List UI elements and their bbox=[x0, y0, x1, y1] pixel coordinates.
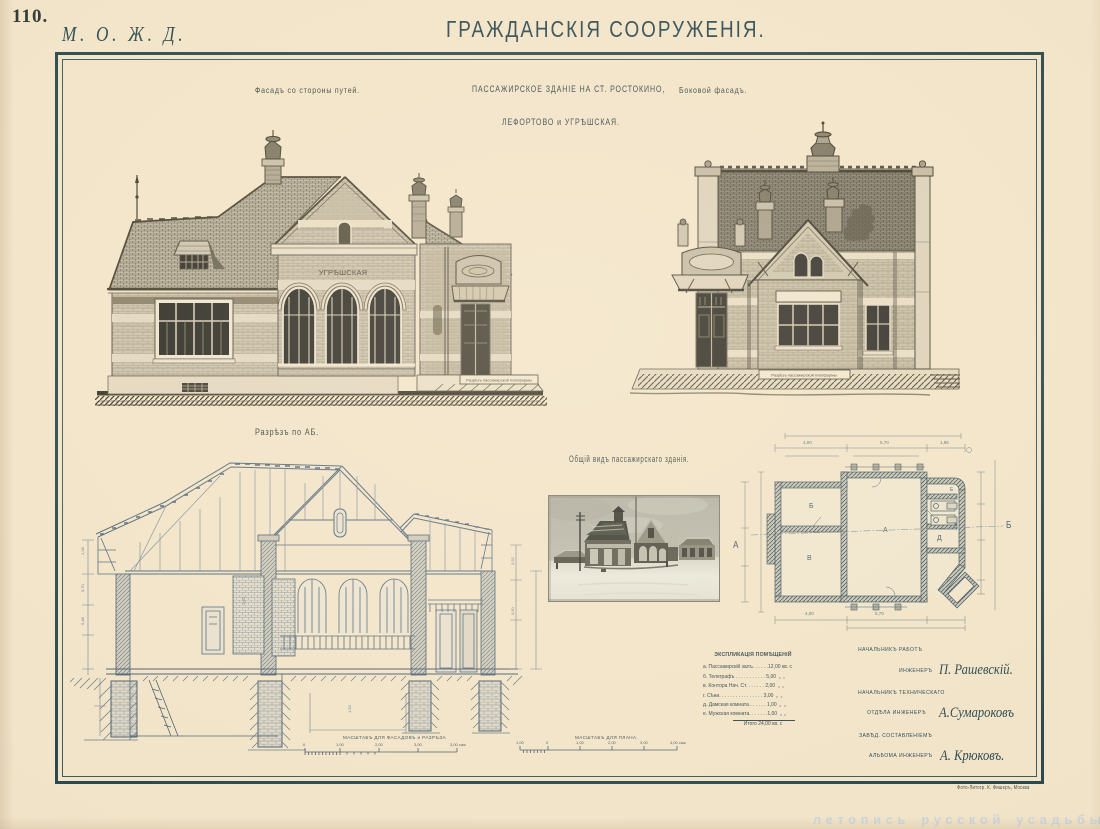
svg-text:1,95: 1,95 bbox=[940, 440, 949, 445]
svg-text:5,70: 5,70 bbox=[875, 611, 884, 616]
svg-text:0: 0 bbox=[546, 740, 549, 745]
svg-text:0: 0 bbox=[303, 742, 306, 747]
svg-text:3,00: 3,00 bbox=[640, 740, 649, 745]
svg-text:2,00: 2,00 bbox=[375, 742, 384, 747]
svg-text:3,00 саж: 3,00 саж bbox=[450, 742, 466, 747]
svg-text:УГРѢШСКАЯ: УГРѢШСКАЯ bbox=[319, 268, 368, 277]
svg-text:0,60: 0,60 bbox=[510, 606, 515, 615]
svg-text:2,00: 2,00 bbox=[608, 740, 617, 745]
svg-text:1,00: 1,00 bbox=[336, 742, 345, 747]
svg-text:1,00: 1,00 bbox=[516, 740, 525, 745]
svg-text:0,48: 0,48 bbox=[80, 616, 85, 625]
svg-text:1,50: 1,50 bbox=[347, 704, 352, 713]
svg-text:4,00: 4,00 bbox=[803, 440, 812, 445]
svg-text:А: А bbox=[883, 527, 888, 534]
svg-text:В: В bbox=[807, 555, 812, 562]
svg-text:Разрѣзъ пассажирской платформы: Разрѣзъ пассажирской платформы bbox=[771, 373, 837, 378]
svg-text:0,70: 0,70 bbox=[80, 583, 85, 592]
svg-text:4,00: 4,00 bbox=[805, 611, 814, 616]
svg-text:1,08: 1,08 bbox=[80, 546, 85, 555]
svg-text:0,92: 0,92 bbox=[510, 556, 515, 565]
svg-text:1,82: 1,82 bbox=[241, 596, 246, 605]
svg-text:Разрѣзъ пассажирской платформы: Разрѣзъ пассажирской платформы bbox=[466, 378, 532, 383]
svg-text:4,00 саж: 4,00 саж bbox=[670, 740, 686, 745]
svg-text:МАСШТАБЪ ДЛЯ ПЛАНА.: МАСШТАБЪ ДЛЯ ПЛАНА. bbox=[575, 735, 638, 740]
svg-text:МАСШТАБЪ ДЛЯ ФАСАДОВЪ и РА: МАСШТАБЪ ДЛЯ ФАСАДОВЪ и РАЗРѢЗА bbox=[343, 735, 447, 740]
svg-text:Д: Д bbox=[937, 535, 942, 542]
svg-text:Б: Б bbox=[809, 503, 814, 510]
svg-text:Г: Г bbox=[947, 577, 951, 584]
svg-text:3,00: 3,00 bbox=[414, 742, 423, 747]
svg-text:1,00: 1,00 bbox=[576, 740, 585, 745]
svg-text:5,70: 5,70 bbox=[880, 440, 889, 445]
